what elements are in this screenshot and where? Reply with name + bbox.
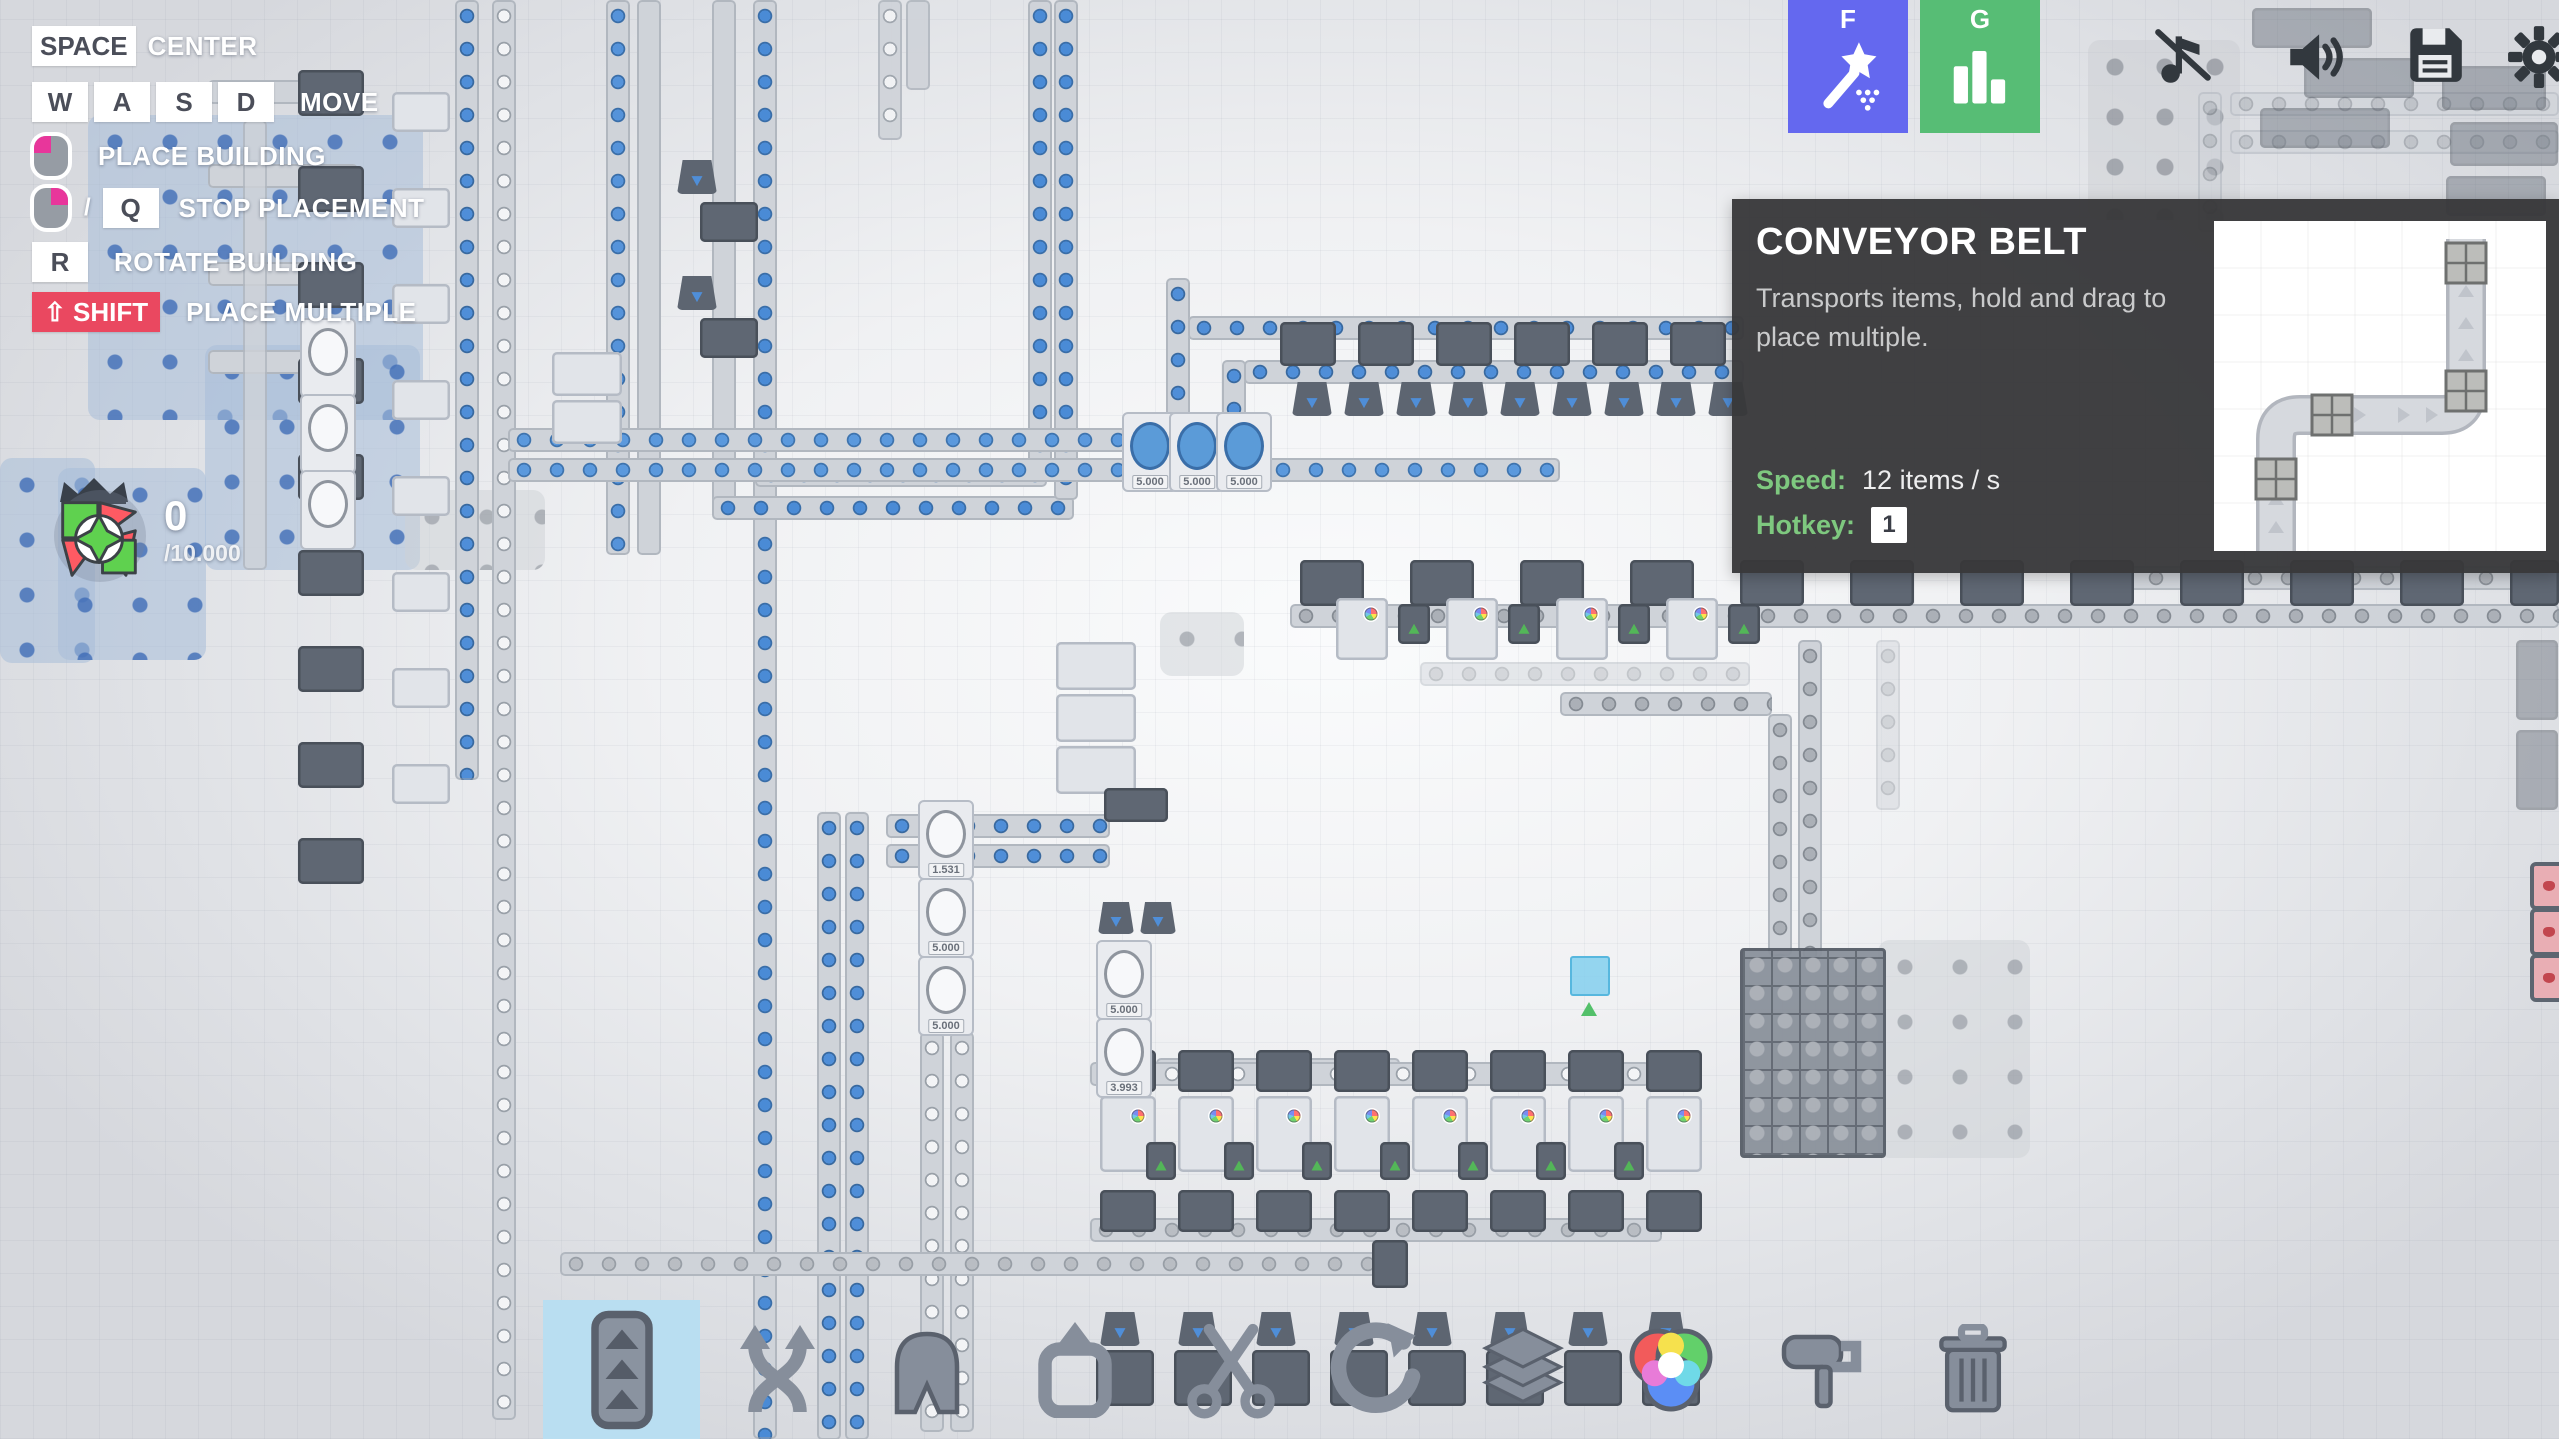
building: [1536, 1142, 1566, 1180]
conveyor-belt: [1054, 0, 1078, 500]
direction-arrow: [1567, 398, 1578, 408]
key-r: R: [32, 242, 88, 282]
blueprint-hotkey-label: F: [1840, 4, 1856, 35]
building: [1398, 604, 1430, 644]
storage-count: 5.000: [928, 1019, 964, 1033]
goal-total: /10.000: [164, 540, 241, 567]
building: [677, 160, 717, 194]
tooltip-speed-row: Speed: 12 items / s: [1756, 465, 2000, 496]
direction-arrow: [1463, 398, 1474, 408]
stored-shape: [926, 888, 966, 936]
building: [1396, 382, 1436, 416]
building: [1056, 694, 1136, 742]
building: [1618, 604, 1650, 644]
key-space: SPACE: [32, 26, 136, 66]
building: [552, 400, 622, 444]
color-mixer-dot: [1365, 608, 1378, 621]
red-shape: [2543, 881, 2555, 891]
direction-arrow: [1671, 398, 1682, 408]
tool-cutter-button[interactable]: [1152, 1300, 1309, 1439]
building: [1666, 598, 1718, 660]
building: [1490, 1050, 1546, 1092]
storage-count: 5.000: [1106, 1003, 1142, 1017]
direction-arrow: [1515, 398, 1526, 408]
direction-arrow: [1546, 1161, 1557, 1171]
building: [1302, 1142, 1332, 1180]
building-toolbar: [0, 1300, 2559, 1439]
building: [1256, 1190, 1312, 1232]
building-tooltip: CONVEYOR BELT Transports items, hold and…: [1732, 199, 2559, 573]
building: [1728, 604, 1760, 644]
building: [1412, 1050, 1468, 1092]
building: [2260, 108, 2390, 148]
gear-icon[interactable]: [2506, 24, 2559, 90]
direction-arrow: [1307, 398, 1318, 408]
direction-arrow: [1390, 1161, 1401, 1171]
key-s: S: [156, 82, 212, 122]
building: [1056, 746, 1136, 794]
building: [1446, 598, 1498, 660]
color-mixer-dot: [1366, 1109, 1379, 1122]
color-mixer-dot: [1210, 1109, 1223, 1122]
conveyor-belt: [1560, 692, 1772, 716]
building: [677, 276, 717, 310]
hint-place-label: PLACE BUILDING: [98, 141, 326, 172]
tool-stacker-button[interactable]: [1444, 1300, 1601, 1439]
building: [1490, 1190, 1546, 1232]
building: [392, 572, 450, 612]
building: [2450, 122, 2558, 166]
tooltip-preview-image: [2214, 221, 2546, 551]
building: [1514, 322, 1570, 366]
building: [2516, 730, 2558, 810]
tool-mixer-button[interactable]: [1592, 1300, 1749, 1439]
building: [1556, 598, 1608, 660]
stored-shape: [308, 480, 348, 528]
hint-row-center: SPACE CENTER: [32, 26, 258, 66]
speaker-icon[interactable]: [2282, 24, 2348, 90]
stored-shape: [926, 966, 966, 1014]
tool-balancer-button[interactable]: [700, 1300, 857, 1439]
building: [1178, 1050, 1234, 1092]
mouse-left-icon: [34, 136, 68, 176]
storage-building: [300, 470, 356, 550]
building: [1436, 322, 1492, 366]
stored-shape: [308, 328, 348, 376]
stored-shape: [1104, 1028, 1144, 1076]
direction-arrow: [1111, 917, 1122, 927]
building: [1646, 1190, 1702, 1232]
magic-wand-icon: [1813, 35, 1883, 115]
building: [1344, 382, 1384, 416]
building: [1380, 1142, 1410, 1180]
red-item-cell: [2530, 908, 2559, 956]
direction-arrow: [692, 176, 703, 186]
color-mixer-dot: [1288, 1109, 1301, 1122]
key-q: Q: [103, 188, 159, 228]
extractor-grid: [1740, 948, 1886, 1158]
placement-arrow-icon: [1581, 1002, 1597, 1016]
tool-extractor-button[interactable]: [996, 1300, 1153, 1439]
color-mixer-dot: [1132, 1109, 1145, 1122]
hint-center-label: CENTER: [148, 31, 258, 62]
direction-arrow: [1153, 917, 1164, 927]
color-mixer-dot: [1522, 1109, 1535, 1122]
storage-building: 5.000: [918, 956, 974, 1036]
building: [1178, 1190, 1234, 1232]
stats-hotkey-label: G: [1970, 4, 1990, 35]
key-w: W: [32, 82, 88, 122]
building: [1098, 902, 1134, 934]
building: [552, 352, 622, 396]
building: [298, 838, 364, 884]
resource-patch-gray: [1878, 940, 2030, 1158]
conveyor-belt: [1798, 640, 1822, 958]
storage-count: 5.000: [1132, 475, 1168, 489]
tool-painter-button[interactable]: [1744, 1300, 1901, 1439]
tooltip-description: Transports items, hold and drag to place…: [1756, 279, 2186, 357]
building: [1552, 382, 1592, 416]
direction-arrow: [1619, 398, 1630, 408]
tooltip-hotkey-value: 1: [1871, 507, 1907, 543]
stored-shape: [1177, 422, 1217, 470]
statistics-button[interactable]: G: [1920, 0, 2040, 133]
conveyor-belt: [878, 0, 902, 140]
building: [1604, 382, 1644, 416]
building: [392, 668, 450, 708]
conveyor-belt: [455, 0, 479, 780]
tooltip-speed-label: Speed:: [1756, 465, 1846, 496]
color-mixer-dot: [1678, 1109, 1691, 1122]
goal-count: 0: [164, 492, 187, 540]
color-mixer-dot: [1444, 1109, 1457, 1122]
building: [1412, 1190, 1468, 1232]
red-shape: [2543, 927, 2555, 937]
hint-multiple-label: PLACE MULTIPLE: [186, 297, 416, 328]
building: [298, 550, 364, 596]
storage-building: 1.531: [918, 800, 974, 880]
building: [1336, 598, 1388, 660]
building: [1656, 382, 1696, 416]
conveyor-belt: [508, 458, 1560, 482]
hint-stop-label: STOP PLACEMENT: [179, 193, 425, 224]
mouse-right-icon: [34, 188, 68, 228]
color-mixer-dot: [1600, 1109, 1613, 1122]
storage-building: 5.000: [1096, 940, 1152, 1020]
conveyor-belt: [906, 0, 930, 90]
conveyor-belt: [712, 496, 1074, 520]
storage-count: 5.000: [1226, 475, 1262, 489]
building: [1458, 1142, 1488, 1180]
storage-count: 5.000: [1179, 475, 1215, 489]
hint-row-stop: / Q STOP PLACEMENT: [32, 186, 425, 230]
blueprint-button[interactable]: F: [1788, 0, 1908, 133]
tooltip-title: CONVEYOR BELT: [1756, 221, 2087, 264]
building: [700, 202, 758, 242]
tool-rotator-button[interactable]: [1296, 1300, 1453, 1439]
building: [392, 380, 450, 420]
direction-arrow: [1629, 624, 1640, 634]
tool-trash-button[interactable]: [1894, 1300, 2051, 1439]
direction-arrow: [1312, 1161, 1323, 1171]
stored-shape: [1130, 422, 1170, 470]
building: [1592, 322, 1648, 366]
placement-ghost: [1570, 956, 1610, 996]
hint-slash: /: [84, 194, 91, 222]
save-icon[interactable]: [2402, 22, 2468, 88]
building: [1500, 382, 1540, 416]
conveyor-belt: [1768, 714, 1792, 956]
building: [1280, 322, 1336, 366]
direction-arrow: [1468, 1161, 1479, 1171]
storage-count: 3.993: [1106, 1081, 1142, 1095]
color-mixer-dot: [1475, 608, 1488, 621]
building: [1334, 1050, 1390, 1092]
hint-row-move: W A S D MOVE: [32, 82, 379, 122]
tooltip-speed-value: 12 items / s: [1862, 465, 2000, 496]
goal-shape-icon: [58, 498, 140, 580]
conveyor-belt: [1420, 662, 1750, 686]
storage-building: 5.000: [1216, 412, 1272, 492]
building: [1508, 604, 1540, 644]
hint-move-label: MOVE: [300, 87, 379, 118]
conveyor-belt: [1028, 0, 1052, 468]
conveyor-belt: [1876, 640, 1900, 810]
building: [1448, 382, 1488, 416]
direction-arrow: [1519, 624, 1530, 634]
building: [392, 476, 450, 516]
goal-pin[interactable]: 0 /10.000: [36, 468, 296, 588]
building: [1224, 1142, 1254, 1180]
resource-patch-gray: [1160, 612, 1244, 676]
key-shift: ⇧ SHIFT: [32, 292, 160, 332]
direction-arrow: [1411, 398, 1422, 408]
building: [700, 318, 758, 358]
building: [1292, 382, 1332, 416]
stored-shape: [926, 810, 966, 858]
red-shape: [2543, 973, 2555, 983]
building: [298, 742, 364, 788]
building: [1646, 1096, 1702, 1172]
tooltip-hotkey-row: Hotkey: 1: [1756, 507, 1907, 543]
key-a: A: [94, 82, 150, 122]
direction-arrow: [1739, 624, 1750, 634]
building: [298, 646, 364, 692]
building: [1670, 322, 1726, 366]
building: [1140, 902, 1176, 934]
stored-shape: [1104, 950, 1144, 998]
stored-shape: [308, 404, 348, 452]
building: [1056, 642, 1136, 690]
color-mixer-dot: [1695, 608, 1708, 621]
color-mixer-dot: [1585, 608, 1598, 621]
red-item-cell: [2530, 862, 2559, 910]
building: [1372, 1240, 1408, 1288]
storage-count: 1.531: [928, 863, 964, 877]
building: [1334, 1190, 1390, 1232]
conveyor-belt: [492, 0, 516, 1420]
building: [392, 764, 450, 804]
hint-rotate-label: ROTATE BUILDING: [114, 247, 357, 278]
building: [1646, 1050, 1702, 1092]
tooltip-hotkey-label: Hotkey:: [1756, 510, 1855, 541]
building: [1568, 1050, 1624, 1092]
conveyor-belt: [560, 1252, 1400, 1276]
direction-arrow: [1234, 1161, 1245, 1171]
hint-row-place: PLACE BUILDING: [32, 134, 326, 178]
direction-arrow: [1409, 624, 1420, 634]
building: [1256, 1050, 1312, 1092]
storage-building: 3.993: [1096, 1018, 1152, 1098]
building: [2516, 640, 2558, 720]
hint-row-multiple: ⇧ SHIFT PLACE MULTIPLE: [32, 292, 417, 332]
tool-belt-button[interactable]: [543, 1300, 700, 1439]
building: [392, 92, 450, 132]
building: [1104, 788, 1168, 822]
building: [1614, 1142, 1644, 1180]
key-d: D: [218, 82, 274, 122]
storage-count: 5.000: [928, 941, 964, 955]
hint-row-rotate: R ROTATE BUILDING: [32, 242, 357, 282]
storage-building: [300, 394, 356, 474]
direction-arrow: [1359, 398, 1370, 408]
building: [1146, 1142, 1176, 1180]
game-world[interactable]: 5.0005.0005.0001.5315.0005.0005.0003.993…: [0, 0, 2559, 1439]
building: [1100, 1190, 1156, 1232]
direction-arrow: [1624, 1161, 1635, 1171]
tool-tunnel-button[interactable]: [848, 1300, 1005, 1439]
building: [1358, 322, 1414, 366]
music-muted-icon[interactable]: [2150, 24, 2216, 90]
bar-chart-icon: [1945, 35, 2015, 115]
red-item-cell: [2530, 954, 2559, 1002]
stored-shape: [1224, 422, 1264, 470]
direction-arrow: [1156, 1161, 1167, 1171]
direction-arrow: [692, 292, 703, 302]
building: [1568, 1190, 1624, 1232]
storage-building: 5.000: [918, 878, 974, 958]
